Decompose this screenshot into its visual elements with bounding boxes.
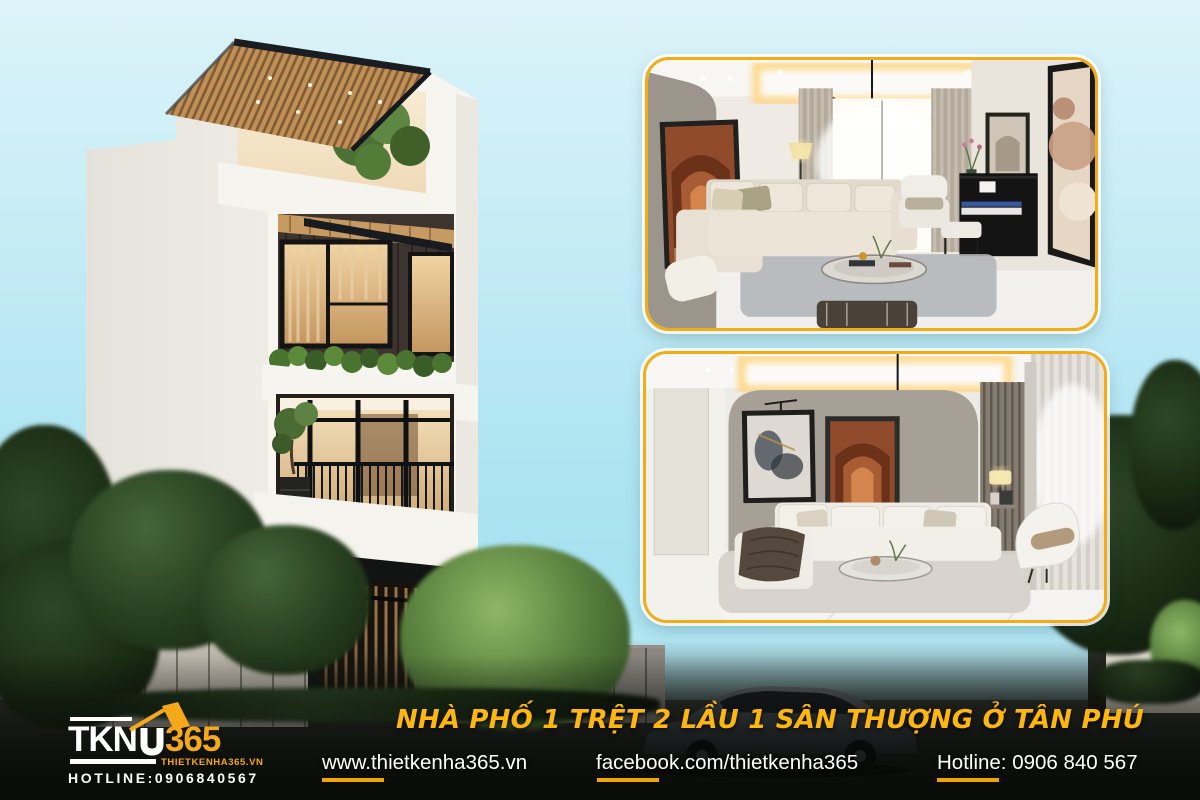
second-floor-side-window (410, 254, 452, 354)
hotline-underline (937, 778, 999, 782)
facebook-link[interactable]: facebook.com/thietkenha365 (596, 751, 858, 775)
logo-hotline: HOTLINE:0906840567 (68, 770, 259, 786)
doorway (654, 384, 708, 555)
second-floor-window (282, 242, 390, 346)
large-abstract-art-right (1048, 60, 1095, 267)
second-floor (269, 214, 454, 377)
interior-panel-1 (645, 57, 1098, 331)
interior-panel-2 (643, 351, 1107, 623)
logo-text-tkn: TKN (68, 722, 137, 757)
facebook-underline (597, 778, 659, 782)
abstract-painting (742, 410, 816, 504)
living-room-scene-2 (646, 354, 1104, 620)
website-link[interactable]: www.thietkenha365.vn (322, 751, 527, 775)
logo-website: THIETKENHA365.VN (161, 757, 264, 768)
website-underline (322, 778, 384, 782)
hotline-text[interactable]: Hotline: 0906 840 567 (937, 751, 1138, 775)
house-roof-icon (128, 702, 192, 736)
poster: 07 TÔ HIỆU (0, 0, 1200, 800)
poster-title: NHÀ PHỐ 1 TRỆT 2 LẦU 1 SÂN THƯỢNG Ở TÂN … (388, 705, 1152, 735)
palm-foliage (200, 525, 370, 675)
living-room-scene-1 (648, 60, 1095, 328)
dark-throw-rug (817, 301, 917, 328)
brand-logo: TKN 365 THIETKENHA365.VN HOTLINE:0906840… (68, 702, 283, 794)
hedge-right (1095, 660, 1200, 704)
logo-under-bar (70, 759, 156, 764)
armchair (899, 175, 949, 228)
upright-piano (959, 173, 1037, 256)
small-framed-art (986, 113, 1030, 180)
